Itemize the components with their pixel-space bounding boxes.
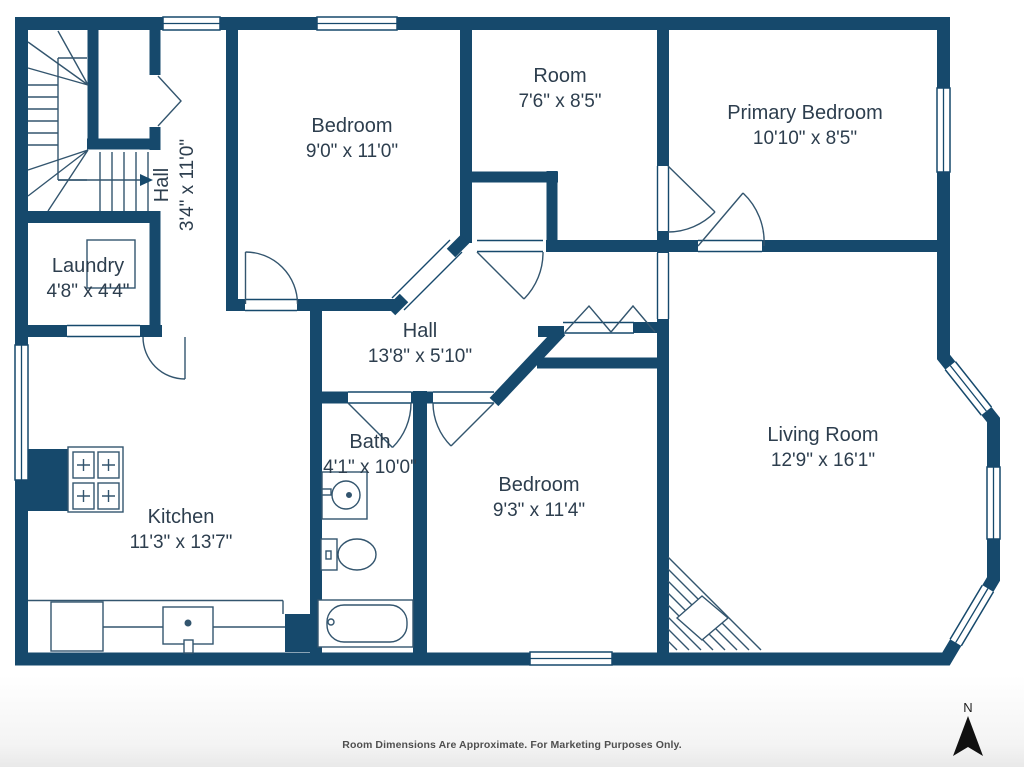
kitchen-counter-block: [28, 449, 68, 511]
room-label-hall-upper: Hall 3'4" x 11'0": [150, 139, 200, 231]
room-label-bedroom-1: Bedroom 9'0" x 11'0": [306, 114, 398, 164]
window-icon: [317, 17, 397, 30]
bay-window-icon: [945, 362, 991, 416]
window-icon: [163, 17, 220, 30]
room-dimensions: 12'9" x 16'1": [767, 448, 878, 473]
room-name: Laundry: [46, 254, 129, 279]
staircase-down: [668, 557, 761, 650]
room-label-bath: Bath 4'1" x 10'0": [323, 430, 417, 480]
room-label-bedroom-2: Bedroom 9'3" x 11'4": [493, 473, 585, 523]
room-label-hall-main: Hall 13'8" x 5'10": [368, 319, 472, 369]
toilet-icon: [321, 539, 376, 570]
room-name: Bath: [323, 430, 417, 455]
kitchen-counter: [28, 601, 287, 652]
compass-label: N: [963, 700, 972, 715]
room-dimensions: 4'8" x 4'4": [46, 279, 129, 304]
room-dimensions: 3'4" x 11'0": [175, 139, 200, 231]
room-label-living-room: Living Room 12'9" x 16'1": [767, 423, 878, 473]
room-dimensions: 11'3" x 13'7": [130, 530, 233, 555]
bath-fixtures: [318, 472, 413, 647]
bay-window-icon: [950, 585, 993, 646]
bathtub-icon: [318, 600, 413, 647]
window-icon: [15, 345, 28, 480]
room-name: Living Room: [767, 423, 878, 448]
window-icon: [530, 652, 612, 665]
stove-icon: [68, 447, 123, 512]
room-label-room: Room 7'6" x 8'5": [518, 64, 601, 114]
room-label-laundry: Laundry 4'8" x 4'4": [46, 254, 129, 304]
room-name: Hall: [368, 319, 472, 344]
disclaimer-text: Room Dimensions Are Approximate. For Mar…: [342, 739, 681, 751]
room-dimensions: 7'6" x 8'5": [518, 89, 601, 114]
room-label-kitchen: Kitchen 11'3" x 13'7": [130, 505, 233, 555]
room-name: Bedroom: [493, 473, 585, 498]
room-dimensions: 9'3" x 11'4": [493, 498, 585, 523]
kitchen-peninsula-block: [285, 614, 322, 652]
room-name: Hall: [150, 139, 175, 231]
room-dimensions: 4'1" x 10'0": [323, 455, 417, 480]
room-name: Room: [518, 64, 601, 89]
room-label-primary-bedroom: Primary Bedroom 10'10" x 8'5": [727, 101, 883, 151]
bay-window-icon: [987, 467, 1000, 539]
room-dimensions: 9'0" x 11'0": [306, 139, 398, 164]
compass: N: [953, 700, 983, 756]
floorplan: N Bedroom 9'0" x 11'0" Room 7'6" x 8'5" …: [0, 0, 1024, 767]
room-name: Primary Bedroom: [727, 101, 883, 126]
window-icon: [937, 88, 950, 172]
room-dimensions: 10'10" x 8'5": [727, 126, 883, 151]
room-dimensions: 13'8" x 5'10": [368, 344, 472, 369]
north-arrow-icon: [953, 716, 983, 756]
kitchen-sink-icon: [163, 607, 213, 653]
room-name: Kitchen: [130, 505, 233, 530]
room-name: Bedroom: [306, 114, 398, 139]
